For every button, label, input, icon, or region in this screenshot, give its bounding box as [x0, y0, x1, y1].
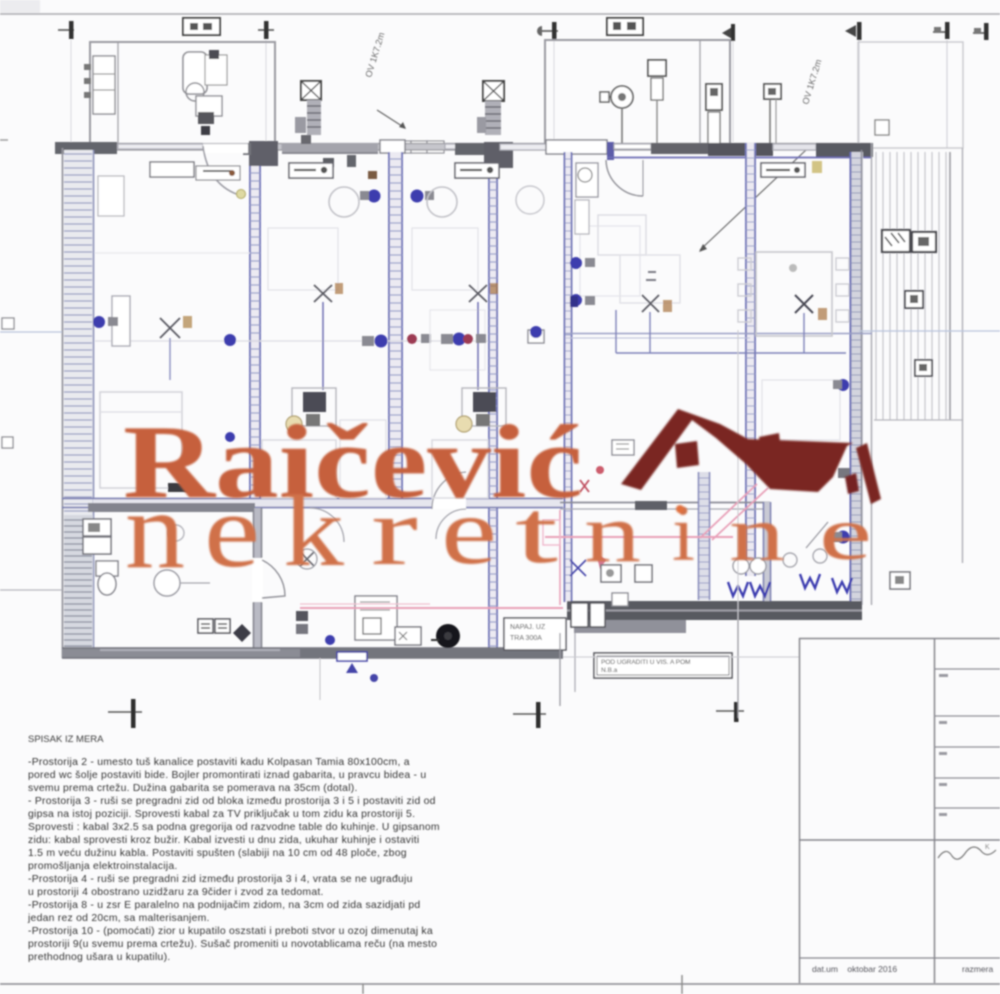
- svg-text:e: e: [204, 472, 260, 589]
- svg-text:promošljanja elektroinstalacij: promošljanja elektroinstalacija.: [28, 861, 178, 872]
- svg-text:i: i: [672, 490, 695, 578]
- svg-text:Raičević: Raičević: [123, 403, 583, 520]
- svg-text:prostoriji 9(u svemu prema crt: prostoriji 9(u svemu prema crtežu). Suša…: [28, 939, 437, 950]
- svg-text:-Prostorija 4 - ruši se pregra: -Prostorija 4 - ruši se pregradni zid iz…: [28, 874, 413, 885]
- svg-text:NAPAJ. UZ: NAPAJ. UZ: [510, 624, 546, 631]
- svg-text:-Prostorija 8 - u zsr E parale: -Prostorija 8 - u zsr E paralelno na pod…: [28, 900, 420, 911]
- svg-text:-Prostorija 10 - (pomoćati) zi: -Prostorija 10 - (pomoćati) zior u kupat…: [28, 926, 433, 937]
- svg-text:TRA 300A: TRA 300A: [510, 635, 542, 642]
- svg-text:N.B.a: N.B.a: [601, 667, 618, 674]
- svg-text:n: n: [584, 487, 641, 580]
- svg-text:svemu prema crtežu. Dužina g: svemu prema crtežu. Dužina gabarita se p…: [28, 783, 358, 794]
- svg-text:n: n: [125, 469, 185, 591]
- svg-text:razmera: razmera: [962, 964, 993, 974]
- svg-text:r: r: [371, 478, 418, 586]
- svg-text:k: k: [283, 475, 344, 588]
- svg-text:- Prostorija 3 - ruši se pregr: - Prostorija 3 - ruši se pregradni zid o…: [28, 796, 436, 807]
- svg-text:n: n: [729, 490, 785, 577]
- svg-text:e: e: [819, 492, 872, 576]
- svg-text:Sprovesti : kabal 3x2.5 sa po: Sprovesti : kabal 3x2.5 sa podna gregori…: [28, 822, 440, 833]
- svg-text:gipsa na istoj poziciji. Sprov: gipsa na istoj poziciji. Sprovesti kabal…: [28, 809, 415, 820]
- svg-text:SPISAK IZ MERA: SPISAK IZ MERA: [28, 734, 104, 745]
- svg-text:u prostoriji 4 obostrano uzidž: u prostoriji 4 obostrano uzidžaru za 9či…: [28, 887, 324, 898]
- svg-text:1.5 m veću dužinu kabla. Pos: 1.5 m veću dužinu kabla. Postaviti spušt…: [28, 848, 407, 859]
- svg-text:K: K: [985, 844, 990, 851]
- svg-text:t: t: [515, 483, 558, 582]
- svg-text:zidu: kabal sprovesti kroz buž: zidu: kabal sprovesti kroz bužir. Kabal …: [28, 835, 419, 846]
- svg-text:OV 1K7.2m: OV 1K7.2m: [363, 31, 386, 78]
- svg-text:POD UGRADITI U VIS. A POM: POD UGRADITI U VIS. A POM: [601, 659, 691, 666]
- svg-text:e: e: [441, 478, 497, 584]
- svg-text:-Prostorija 2 - umesto tuš k: -Prostorija 2 - umesto tuš kanalice post…: [28, 757, 410, 768]
- svg-text:pored wc šolje postaviti bide: pored wc šolje postaviti bide. Bojler pr…: [28, 770, 426, 781]
- svg-text:OV 1K7.2m: OV 1K7.2m: [800, 58, 823, 105]
- svg-text:dat.um oktobar 2016: dat.um oktobar 2016: [812, 964, 897, 974]
- svg-text:jedan rez od 20cm, sa malteris: jedan rez od 20cm, sa malterisanjem.: [27, 913, 210, 924]
- svg-text:prethodnog ušara u kupatilu).: prethodnog ušara u kupatilu).: [28, 952, 170, 963]
